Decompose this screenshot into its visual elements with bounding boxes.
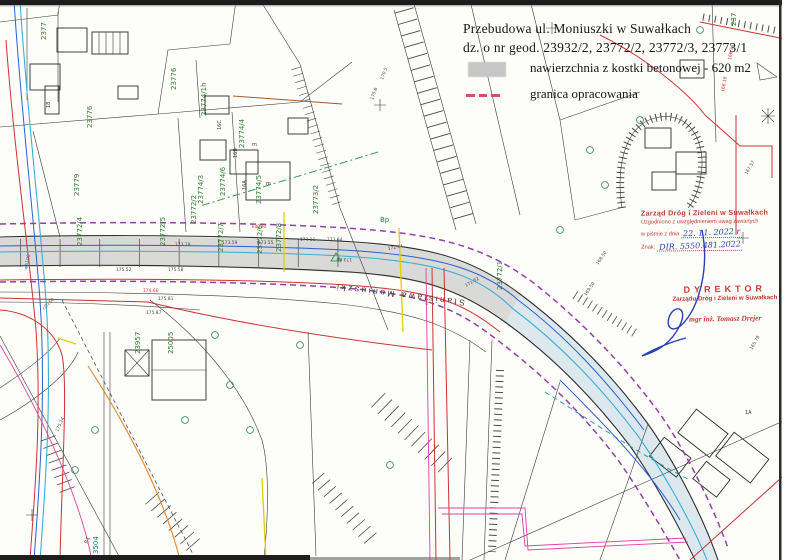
parking-stalls bbox=[378, 400, 448, 468]
scan-edge-bottom bbox=[0, 555, 310, 560]
parcel-label: 23772/1 bbox=[496, 261, 504, 290]
elevation-label: 175.87 bbox=[146, 310, 162, 316]
parcel-label: 23774/6 bbox=[219, 166, 227, 196]
horseshoe-wall bbox=[620, 116, 702, 208]
tree-icon bbox=[297, 342, 304, 349]
parcel-label: 23772/7 bbox=[217, 223, 225, 252]
elevation-label: 175.52 bbox=[116, 267, 132, 273]
parcel-label: 25005 bbox=[167, 332, 175, 354]
elevation-label: 175.81 bbox=[158, 296, 174, 302]
tree-icon bbox=[247, 427, 254, 434]
garage-row bbox=[404, 10, 466, 226]
utility-label: kd200 bbox=[252, 224, 266, 230]
elevation-label: 173.66 bbox=[336, 256, 352, 262]
retaining-wall-hatch bbox=[492, 370, 500, 552]
title-line-1: Przebudowa ul. Moniuszki w Suwałkach bbox=[463, 20, 783, 39]
scanned-survey-map-page: Stanisława Moniuszki 2377 23776 23779 23… bbox=[0, 0, 790, 560]
building-label: 1A bbox=[745, 410, 752, 416]
grid-cross bbox=[26, 509, 38, 521]
parcel-label: 23776 bbox=[86, 105, 94, 128]
tree-icon bbox=[227, 382, 234, 389]
elevation-label: 175.58 bbox=[168, 267, 184, 273]
building-label: 18 bbox=[46, 102, 52, 108]
parcel-label: 23772/2 bbox=[190, 195, 198, 224]
tree-icon bbox=[387, 462, 394, 469]
tree-icon bbox=[557, 227, 564, 234]
pen-signature bbox=[642, 230, 705, 356]
grid-cross bbox=[374, 99, 386, 111]
parcel-label: 23776 bbox=[170, 67, 178, 90]
elevation-label: 170.5 bbox=[379, 67, 389, 81]
legend: nawierzchnia z kostki betonowej - 620 m2… bbox=[466, 58, 786, 110]
parcel-label: 3504 bbox=[92, 536, 100, 554]
title-line-2: dz. o nr geod. 23932/2, 23772/2, 23772/3… bbox=[463, 39, 783, 58]
boundary-label: granica opracowania bbox=[530, 86, 638, 102]
tree-icon bbox=[637, 117, 644, 124]
elevation-label: 173.64 bbox=[327, 237, 343, 243]
pavement-swatch bbox=[468, 62, 506, 77]
tree-icon bbox=[212, 332, 219, 339]
pavement-label: nawierzchnia z kostki betonowej - 620 m2 bbox=[530, 60, 751, 76]
parcel-label: 23772/5 bbox=[159, 217, 167, 246]
parking-stalls-3 bbox=[318, 478, 372, 540]
parcel-label: 23774/5 bbox=[255, 175, 263, 204]
drawing-title: Przebudowa ul. Moniuszki w Suwałkach dz.… bbox=[463, 20, 783, 58]
tree-icon bbox=[587, 147, 594, 154]
building-label: P.1 bbox=[83, 536, 91, 545]
tree-icon bbox=[182, 417, 189, 424]
star-symbol bbox=[761, 108, 775, 124]
elevation-label: 173.11 bbox=[300, 237, 316, 243]
boundary-dash-swatch bbox=[466, 94, 500, 97]
elevation-label: 173.59 bbox=[222, 240, 238, 246]
building-label: m bbox=[266, 181, 271, 187]
elevation-label: 174.66 bbox=[143, 288, 159, 294]
elevation-label: 167.57 bbox=[744, 160, 757, 176]
parcel-label: 23774/4 bbox=[238, 118, 246, 148]
elevation-label: 175.8 bbox=[369, 87, 379, 101]
slope-hatch-3 bbox=[48, 438, 68, 492]
scan-edge-top bbox=[0, 0, 790, 5]
parcel-label: 23773/2 bbox=[312, 185, 320, 214]
legend-row-pavement: nawierzchnia z kostki betonowej - 620 m2 bbox=[466, 58, 786, 84]
land-use-label: Bp bbox=[380, 216, 390, 224]
tree-icon bbox=[602, 182, 609, 189]
signature-overlay bbox=[590, 210, 790, 370]
tree-icon bbox=[92, 427, 99, 434]
legend-row-boundary: granica opracowania bbox=[466, 84, 786, 110]
elevation-label: 173.19 bbox=[175, 242, 191, 248]
parcel-label: 23772/4 bbox=[76, 216, 84, 246]
building-label: m bbox=[252, 142, 257, 148]
building-label: 16B bbox=[233, 148, 239, 158]
parcel-label: 23772/8 bbox=[275, 223, 283, 252]
parcel-label: 23774/1h bbox=[200, 82, 208, 116]
elevation-label: 173.55 bbox=[258, 240, 274, 246]
utility-label: eNN bbox=[424, 295, 430, 305]
parcel-label: 23779 bbox=[73, 174, 81, 196]
building-label: 16C bbox=[217, 120, 223, 130]
parcel-label: 2377 bbox=[40, 22, 48, 40]
parcel-label: 23957 bbox=[134, 332, 142, 354]
building-label: 16A bbox=[242, 180, 248, 190]
parcel-label: 23774/3 bbox=[197, 175, 205, 204]
